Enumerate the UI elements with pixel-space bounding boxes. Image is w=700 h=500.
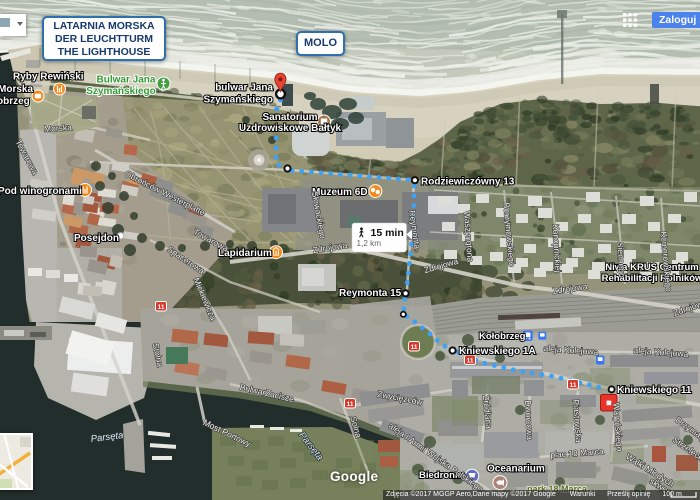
svg-text:Mickiewicza: Mickiewicza: [192, 276, 219, 322]
svg-text:Strzelecka: Strzelecka: [671, 435, 700, 466]
svg-text:Rodziewiczówny 13: Rodziewiczówny 13: [421, 177, 515, 188]
svg-text:Pod winogronami: Pod winogronami: [0, 186, 82, 197]
svg-text:Konopnickiej: Konopnickiej: [551, 224, 564, 273]
svg-text:11: 11: [347, 401, 354, 408]
svg-text:plac 18 Marca: plac 18 Marca: [550, 446, 604, 460]
svg-text:11: 11: [570, 382, 577, 389]
svg-text:1,2 km: 1,2 km: [357, 239, 382, 248]
svg-text:Morska: Morska: [44, 122, 73, 133]
svg-text:11: 11: [158, 304, 165, 311]
svg-text:Zwycięzców: Zwycięzców: [377, 389, 425, 408]
svg-text:aleja Kolejowa: aleja Kolejowa: [633, 345, 689, 359]
svg-text:Waryńskiego: Waryńskiego: [611, 402, 624, 452]
svg-text:Borzymowskiego: Borzymowskiego: [502, 202, 518, 267]
svg-text:Solna: Solna: [348, 415, 363, 439]
svg-text:Oceanarium: Oceanarium: [487, 464, 545, 475]
svg-text:Waszyngtona: Waszyngtona: [462, 211, 476, 263]
svg-text:obrzeg: obrzeg: [0, 96, 30, 107]
svg-text:aleja I Armii Wojska Polskiego: aleja I Armii Wojska Polskiego: [387, 420, 486, 493]
svg-text:Szymańskiego: Szymańskiego: [204, 95, 273, 106]
svg-text:Posejdon: Posejdon: [74, 233, 119, 244]
svg-text:11: 11: [411, 344, 418, 351]
svg-text:Stolna: Stolna: [151, 342, 166, 368]
svg-text:Reymonta 15: Reymonta 15: [339, 288, 402, 299]
svg-text:BulwarZacisze: BulwarZacisze: [239, 382, 295, 404]
svg-text:Piastowska: Piastowska: [571, 399, 584, 443]
svg-text:Szymańskiego: Szymańskiego: [86, 86, 155, 97]
svg-text:Parsęta: Parsęta: [296, 430, 325, 463]
svg-text:Towarowa: Towarowa: [192, 226, 231, 253]
svg-text:Kniewskiego 1A: Kniewskiego 1A: [459, 346, 536, 357]
svg-text:Kołobrzeg: Kołobrzeg: [479, 331, 526, 342]
svg-text:Rehabilitacji Rolników: Rehabilitacji Rolników: [602, 273, 700, 284]
svg-text:Obrońców Westerplatte: Obrońców Westerplatte: [123, 168, 207, 217]
svg-text:Kniewskiego 11: Kniewskiego 11: [617, 385, 692, 396]
svg-text:Towarowa: Towarowa: [14, 138, 41, 177]
svg-text:Sanatorium: Sanatorium: [262, 112, 317, 123]
svg-text:15 min: 15 min: [371, 227, 404, 239]
svg-text:Zdrojowa: Zdrojowa: [672, 297, 700, 318]
svg-text:Dworcowa: Dworcowa: [523, 400, 535, 440]
svg-text:Ryby Rewiński: Ryby Rewiński: [13, 72, 84, 83]
svg-text:Morska: Morska: [0, 84, 33, 95]
svg-text:Zdrojowa: Zdrojowa: [552, 281, 588, 296]
svg-text:Spacerowa: Spacerowa: [166, 244, 207, 276]
svg-text:Siennego: Siennego: [615, 242, 627, 279]
svg-text:aleja Kolejowa: aleja Kolejowa: [543, 343, 599, 357]
svg-text:Most Portowy: Most Portowy: [202, 417, 253, 449]
svg-text:bulwar Jana: bulwar Jana: [215, 83, 273, 94]
svg-text:Zdrojowa: Zdrojowa: [423, 256, 460, 275]
svg-text:11: 11: [467, 358, 474, 365]
svg-text:Uzdrowiskowe Bałtyk: Uzdrowiskowe Bałtyk: [239, 123, 342, 134]
svg-text:Zdrojowa: Zdrojowa: [312, 240, 348, 255]
svg-text:Bulwar Jana: Bulwar Jana: [97, 75, 156, 86]
svg-text:Parsęta: Parsęta: [90, 430, 124, 445]
svg-text:Źródlana: Źródlana: [481, 395, 494, 430]
